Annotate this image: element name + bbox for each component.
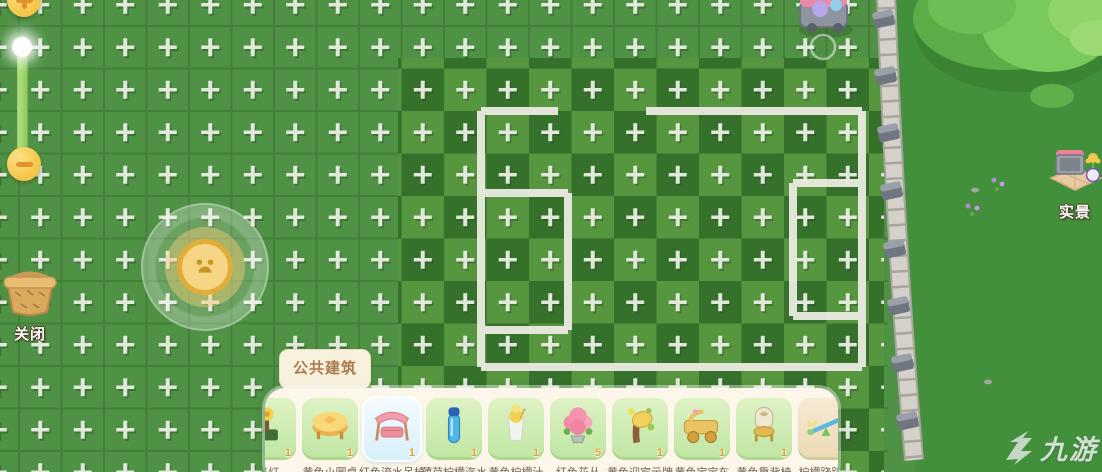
item-name-label: 薄荷柠檬汽水 xyxy=(421,464,487,472)
item-name-label: 黄色小圆桌 xyxy=(303,464,358,472)
build-item-card[interactable]: 1 黄色柠檬汁 xyxy=(488,398,544,460)
item-name-label: 黄色宝宝车 xyxy=(675,464,730,472)
watermark-text: 九游 xyxy=(1040,428,1098,467)
price-badge: 1 xyxy=(657,447,663,459)
placed-furniture-item[interactable] xyxy=(799,0,853,38)
round-table-icon xyxy=(308,403,352,447)
flower-bush-icon xyxy=(556,403,600,447)
item-name-label: 柠檬跷跷板 xyxy=(799,464,839,472)
build-item-card[interactable]: 5 红色花丛 xyxy=(550,398,606,460)
price-badge: 5 xyxy=(595,447,601,459)
build-item-card[interactable]: 1 黄色宝宝车 xyxy=(674,398,730,460)
watermark: 九游 xyxy=(1002,428,1098,467)
room-preview-icon xyxy=(1047,146,1102,196)
royal-chair-icon xyxy=(742,403,786,447)
price-badge: 1 xyxy=(347,447,353,459)
blue-bottle-icon xyxy=(432,403,476,447)
baby-carriage-icon xyxy=(680,403,724,447)
seesaw-icon xyxy=(804,403,838,447)
jiuyou-logo-icon xyxy=(1002,430,1036,466)
live-view-label: 实景 xyxy=(1046,201,1102,222)
basket-icon xyxy=(1,266,59,318)
build-item-card[interactable]: 1 黄色小圆桌 xyxy=(302,398,358,460)
close-button[interactable]: 关闭 xyxy=(0,266,60,344)
build-tab-public-buildings[interactable]: 公共建筑 xyxy=(279,349,371,389)
build-item-card[interactable]: 1 薄荷柠檬汽水 xyxy=(426,398,482,460)
price-badge: 1 xyxy=(285,447,291,459)
close-label: 关闭 xyxy=(0,323,60,344)
zoom-slider-knob[interactable] xyxy=(12,37,32,57)
swing-chair-icon xyxy=(370,403,414,447)
item-name-label: 红色花丛 xyxy=(556,464,600,472)
price-badge: 1 xyxy=(781,447,787,459)
build-item-card[interactable]: 1 黄色靠背椅 xyxy=(736,398,792,460)
price-badge: 1 xyxy=(471,447,477,459)
price-badge: 1 xyxy=(533,447,539,459)
item-name-label: 黄色迎宾示牌 xyxy=(607,464,673,472)
paw-icon xyxy=(189,251,221,283)
lemonade-icon xyxy=(494,403,538,447)
zoom-out-button[interactable] xyxy=(7,147,41,181)
item-name-label: 红色流水吊椅 xyxy=(359,464,425,472)
price-badge: 1 xyxy=(409,447,415,459)
price-badge: 1 xyxy=(719,447,725,459)
item-name-label: 黄色靠背椅 xyxy=(737,464,792,472)
live-view-button[interactable]: 实景 xyxy=(1046,146,1102,222)
welcome-sign-icon xyxy=(618,403,662,447)
minus-icon xyxy=(16,162,33,167)
build-items-row: 1 路灯 1 黄色小圆桌 1 红色流水吊椅 1 薄荷柠檬汽水 1 黄色柠檬汁 5… xyxy=(265,398,838,460)
build-item-card[interactable]: 1 黄色迎宾示牌 xyxy=(612,398,668,460)
game-screen: 关闭 实景 公共建筑 1 路灯 1 黄色小圆桌 1 红色流水吊椅 xyxy=(0,0,1102,472)
build-item-card[interactable]: 柠檬跷跷板 xyxy=(798,398,838,460)
item-name-label: 黄色柠檬汁 xyxy=(489,464,544,472)
build-item-card[interactable]: 1 红色流水吊椅 xyxy=(364,398,420,460)
joystick[interactable] xyxy=(141,203,269,331)
item-name-label: 路灯 xyxy=(265,464,279,472)
build-tab-label: 公共建筑 xyxy=(293,360,357,377)
build-item-card[interactable]: 1 路灯 xyxy=(265,398,296,460)
flower-lamp-icon xyxy=(265,403,290,447)
build-panel: 1 路灯 1 黄色小圆桌 1 红色流水吊椅 1 薄荷柠檬汽水 1 黄色柠檬汁 5… xyxy=(265,388,838,472)
